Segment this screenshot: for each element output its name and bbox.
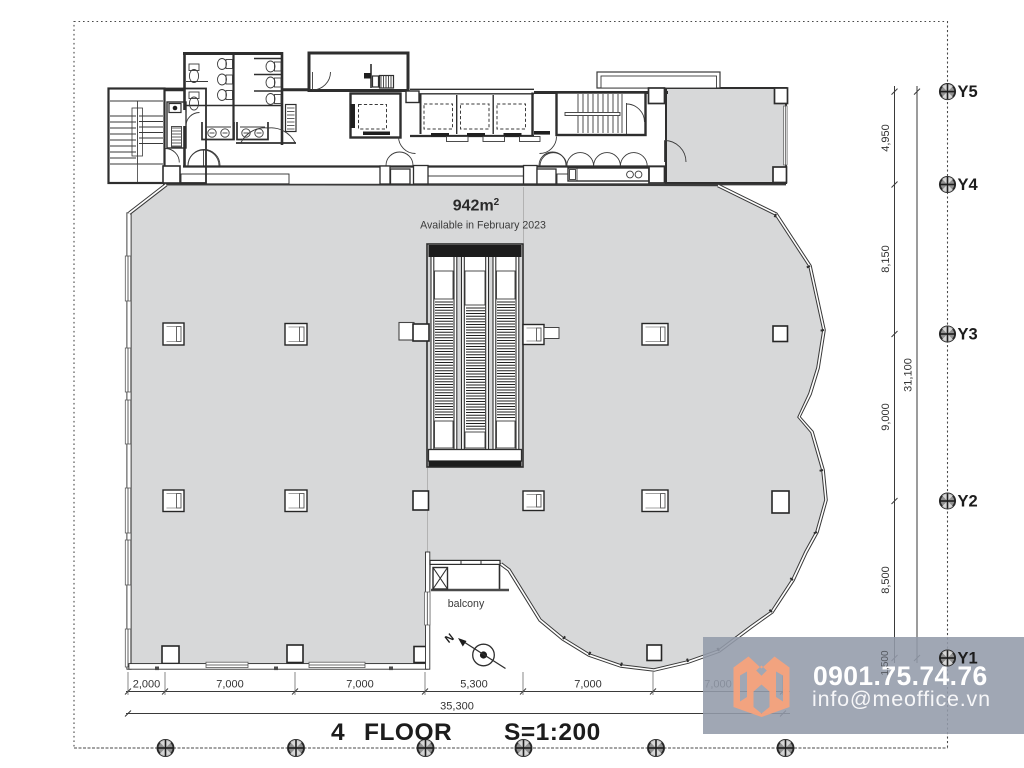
- svg-text:7,000: 7,000: [216, 679, 244, 691]
- svg-text:1,500: 1,500: [880, 650, 891, 675]
- svg-text:8,500: 8,500: [880, 566, 892, 594]
- svg-text:35,300: 35,300: [440, 701, 474, 713]
- svg-text:FLOOR: FLOOR: [364, 719, 452, 746]
- svg-text:7,000: 7,000: [574, 679, 602, 691]
- svg-text:Y4: Y4: [958, 176, 979, 194]
- svg-text:Y2: Y2: [958, 493, 978, 511]
- svg-text:942m2: 942m2: [453, 197, 500, 215]
- svg-text:31,100: 31,100: [903, 358, 915, 392]
- svg-text:info@meoffice.vn: info@meoffice.vn: [812, 687, 991, 711]
- svg-text:Y3: Y3: [958, 326, 978, 344]
- svg-text:8,150: 8,150: [880, 245, 892, 273]
- svg-text:4: 4: [331, 719, 345, 746]
- svg-text:5,300: 5,300: [460, 679, 488, 691]
- svg-text:2,000: 2,000: [133, 679, 161, 691]
- svg-text:Y5: Y5: [958, 83, 978, 101]
- svg-text:4,950: 4,950: [880, 124, 892, 152]
- svg-text:balcony: balcony: [448, 598, 485, 610]
- svg-text:9,000: 9,000: [880, 403, 892, 431]
- svg-text:7,000: 7,000: [346, 679, 374, 691]
- svg-text:Y1: Y1: [958, 650, 978, 668]
- svg-text:S=1:200: S=1:200: [504, 719, 601, 746]
- svg-text:Available in February 2023: Available in February 2023: [420, 220, 546, 232]
